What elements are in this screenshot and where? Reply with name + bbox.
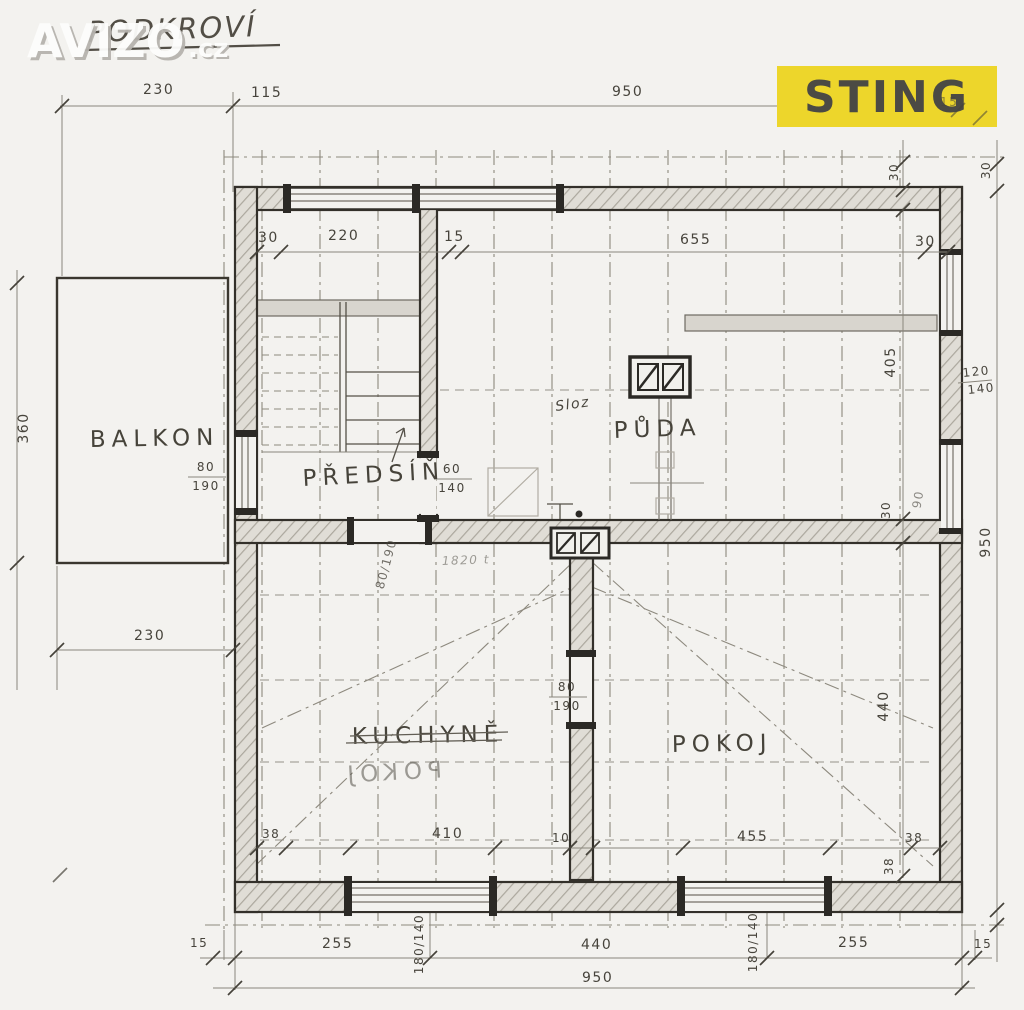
svg-text:80: 80 bbox=[558, 680, 576, 694]
label-balkon: BALKON bbox=[90, 425, 220, 453]
dim-u655: 655 bbox=[680, 232, 711, 248]
dim-w140: 140 bbox=[967, 380, 996, 397]
svg-text:80: 80 bbox=[197, 460, 215, 474]
scanned-floorplan-page: 230 115 950 30 30 30 220 15 655 30 360 2… bbox=[0, 0, 1024, 1010]
chimney-lower bbox=[551, 528, 609, 558]
dim-top-230: 230 bbox=[143, 82, 174, 98]
dim-v30-a: 30 bbox=[887, 163, 901, 181]
pencil-scribble: 1820 t bbox=[442, 552, 491, 568]
dim-f255l: 255 bbox=[322, 936, 353, 952]
dim-r440: 440 bbox=[876, 690, 892, 721]
dim-r90: 90 bbox=[910, 489, 927, 509]
svg-text:15: 15 bbox=[940, 95, 958, 109]
label-pokoj-bleedthrough: POKOJ bbox=[341, 757, 443, 788]
dim-b410: 410 bbox=[432, 826, 463, 842]
floorplan-canvas: 230 115 950 30 30 30 220 15 655 30 360 2… bbox=[0, 0, 1024, 1010]
svg-text:60: 60 bbox=[443, 462, 461, 476]
dim-f255r: 255 bbox=[838, 935, 869, 951]
door-label-mid: 80/190 bbox=[373, 537, 400, 590]
watermark-brand: AVIZO bbox=[27, 14, 185, 68]
dim-f15r: 15 bbox=[974, 937, 992, 951]
staircase bbox=[240, 300, 428, 462]
dim-b10: 10 bbox=[552, 831, 570, 845]
dim-r950: 950 bbox=[978, 526, 994, 557]
dim-w120: 120 bbox=[962, 363, 991, 380]
door-label-balcony: 80 190 bbox=[188, 460, 226, 493]
dim-f440: 440 bbox=[581, 937, 612, 953]
dim-top-950: 950 bbox=[612, 84, 643, 100]
dim-r405: 405 bbox=[883, 346, 899, 377]
dim-u30l: 30 bbox=[258, 230, 279, 246]
dim-l360: 360 bbox=[16, 412, 32, 443]
label-puda: PŮDA bbox=[613, 412, 702, 444]
label-pokoj: POKOJ bbox=[672, 730, 773, 758]
balcony-outline bbox=[57, 278, 228, 563]
dim-v30-b: 30 bbox=[979, 161, 993, 179]
dim-b38l: 38 bbox=[262, 827, 280, 841]
sting-badge: STING bbox=[777, 66, 997, 127]
stair-up-arrow bbox=[392, 428, 405, 462]
watermark-tld: .cz bbox=[188, 34, 228, 64]
dim-r30: 30 bbox=[879, 501, 893, 519]
chimney-upper bbox=[630, 357, 690, 397]
dim-f950: 950 bbox=[582, 970, 613, 986]
dim-top-115: 115 bbox=[251, 85, 282, 101]
dim-window-pokoj: 180/140 bbox=[746, 912, 760, 972]
label-sloz: Sloz bbox=[554, 394, 591, 415]
dim-f15l: 15 bbox=[190, 936, 208, 950]
svg-text:190: 190 bbox=[553, 699, 580, 713]
dim-b38v: 38 bbox=[882, 857, 896, 875]
attic-beam bbox=[685, 315, 937, 331]
svg-text:190: 190 bbox=[192, 479, 219, 493]
dim-b455: 455 bbox=[737, 829, 768, 845]
dim-u15: 15 bbox=[444, 229, 465, 245]
dim-u30r: 30 bbox=[915, 234, 936, 250]
pencil-sketch-detail bbox=[488, 468, 583, 519]
dim-l230: 230 bbox=[134, 628, 165, 644]
dim-window-kitchen: 180/140 bbox=[412, 914, 426, 974]
dim-b38r: 38 bbox=[905, 831, 923, 845]
dim-u220: 220 bbox=[328, 228, 359, 244]
